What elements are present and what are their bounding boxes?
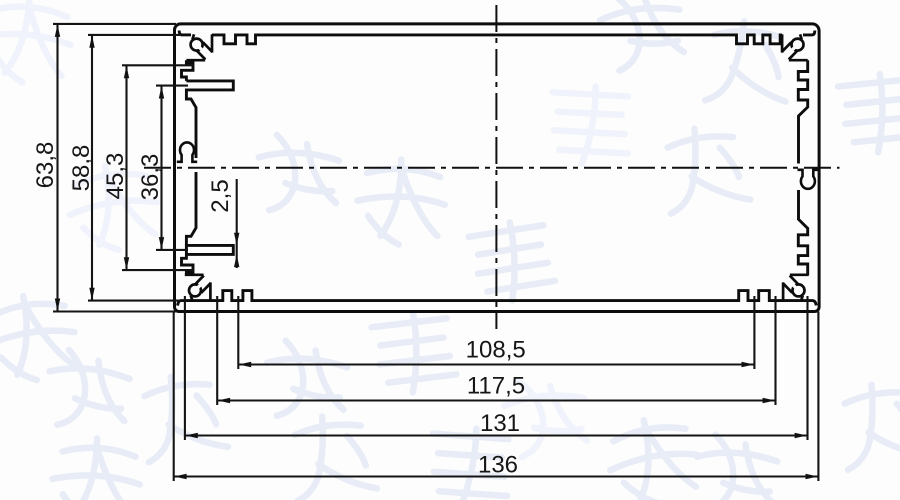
svg-text:45,3: 45,3	[102, 153, 129, 200]
svg-text:2,5: 2,5	[207, 179, 234, 212]
svg-text:117,5: 117,5	[467, 373, 525, 400]
svg-text:63,8: 63,8	[32, 142, 59, 189]
svg-text:131: 131	[480, 410, 520, 437]
svg-text:136: 136	[478, 452, 518, 479]
svg-text:36,3: 36,3	[137, 154, 164, 201]
svg-text:108,5: 108,5	[466, 337, 526, 364]
svg-text:58,8: 58,8	[68, 145, 95, 192]
